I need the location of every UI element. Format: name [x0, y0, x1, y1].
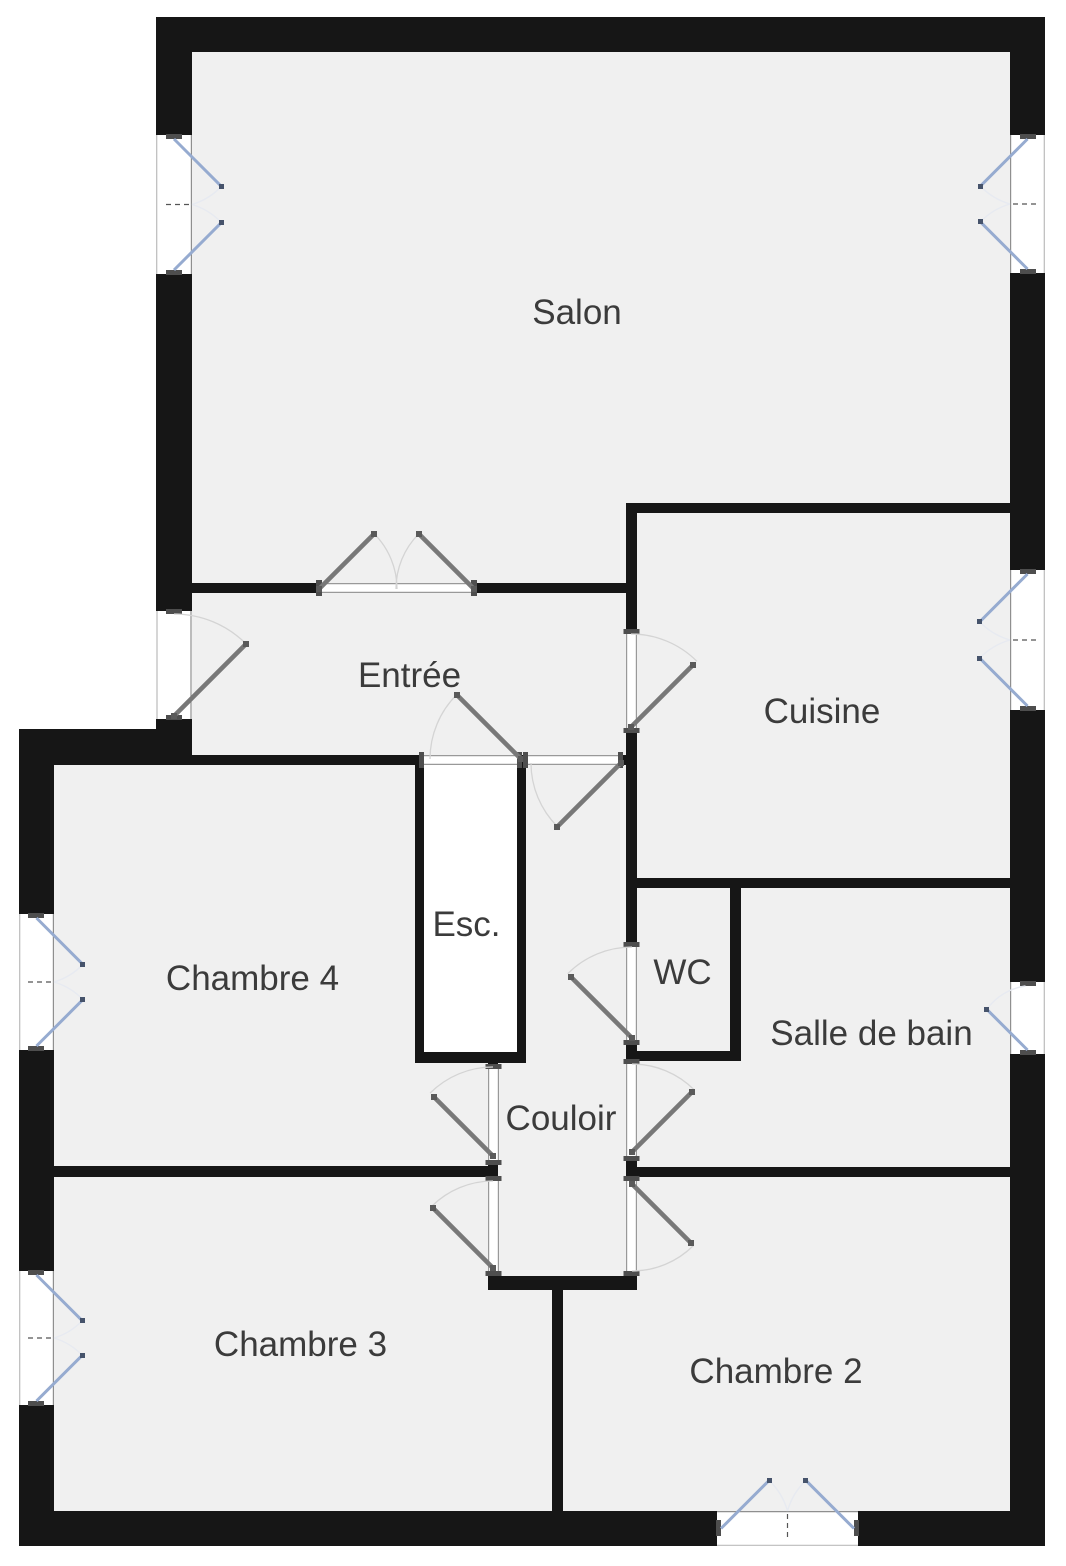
svg-text:Salle de bain: Salle de bain: [770, 1014, 972, 1053]
svg-text:Couloir: Couloir: [506, 1099, 617, 1138]
svg-text:Chambre 3: Chambre 3: [214, 1325, 387, 1364]
svg-text:Entrée: Entrée: [358, 656, 461, 695]
svg-text:WC: WC: [653, 953, 711, 992]
svg-text:Esc.: Esc.: [432, 905, 500, 944]
svg-text:Salon: Salon: [532, 293, 622, 332]
svg-text:Chambre 2: Chambre 2: [689, 1352, 862, 1391]
svg-text:Cuisine: Cuisine: [764, 692, 881, 731]
svg-text:Chambre 4: Chambre 4: [166, 959, 339, 998]
